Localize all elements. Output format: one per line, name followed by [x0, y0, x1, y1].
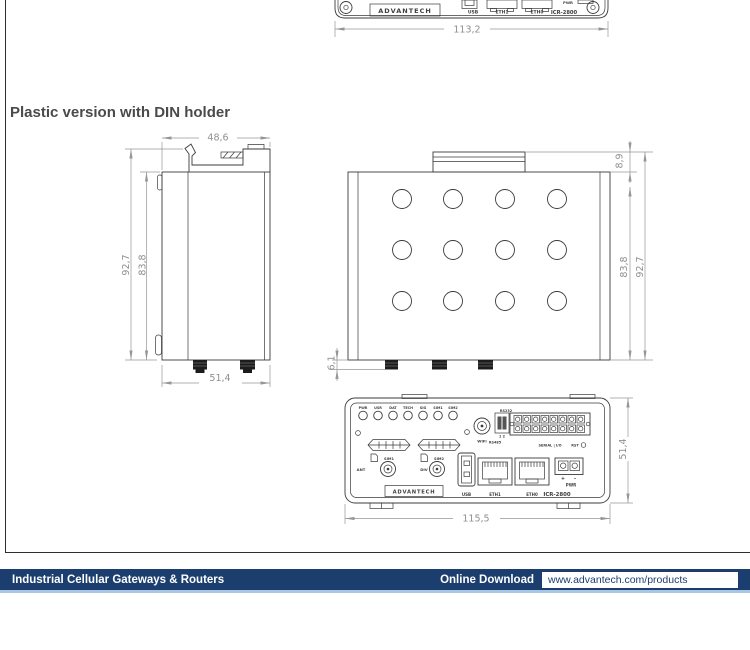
- dimension-8-9: 8,9: [525, 141, 653, 183]
- dimension-83-8: 83,8: [138, 172, 161, 360]
- section-heading: Plastic version with DIN holder: [10, 104, 230, 121]
- advantech-logo-front-text: ADVANTECH: [393, 490, 436, 496]
- usb-label: USB: [468, 10, 479, 16]
- eth0-label: ETH0: [530, 10, 543, 16]
- dim-panel-height-value: 51,4: [618, 438, 629, 459]
- bottom-feet: [370, 503, 580, 509]
- sim2-card-icon: [421, 454, 428, 462]
- device-body-top: [348, 172, 610, 360]
- datasheet-page: ADVANTECH USB ETH1 ETH0 ICR-2800 PWR 113…: [0, 0, 750, 650]
- led-label-sig: SIG: [420, 406, 427, 410]
- plus-mark: +: [561, 476, 565, 482]
- antenna-connectors-side: [193, 360, 255, 373]
- serial-mode-switch[interactable]: RS232 1 2 RS485: [489, 409, 513, 445]
- rst-label: RST: [571, 444, 579, 448]
- clip-tab-upper: [158, 175, 163, 190]
- top-view-drawing: 8,9 83,8 92,7 6,1: [325, 135, 660, 405]
- wifi-label: WiFi: [477, 439, 486, 444]
- front-panel-top-partial-drawing: ADVANTECH USB ETH1 ETH0 ICR-2800 PWR 113…: [330, 0, 620, 45]
- led-label-pwr: PWR: [359, 406, 368, 410]
- dimension-83-8-top: 83,8: [619, 187, 630, 360]
- dimension-51-4-front: 51,4: [610, 398, 633, 503]
- led-label-sim2: SIM2: [448, 406, 458, 410]
- serial-io-label: SERIAL | I/O: [538, 444, 561, 448]
- led-label-sim1: SIM1: [433, 406, 443, 410]
- power-connector[interactable]: + - PWR: [555, 458, 583, 488]
- footer-bar: Industrial Cellular Gateways & Routers O…: [0, 569, 750, 590]
- led-label-dat: DAT: [389, 406, 397, 410]
- dim-clip-height-value: 8,9: [615, 153, 626, 168]
- dim-outer-depth-value: 92,7: [635, 256, 646, 277]
- usb-port[interactable]: USB: [458, 453, 475, 497]
- switch-positions-label: 1 2: [499, 435, 506, 439]
- dim-top-width-value: 113,2: [453, 25, 480, 36]
- dimension-6-1: 6,1: [327, 348, 386, 381]
- sim2-label: SIM2: [434, 457, 445, 461]
- led-label-tech: TECH: [403, 406, 413, 410]
- advantech-logo-text: ADVANTECH: [378, 7, 432, 15]
- div-label: DIV: [420, 467, 428, 472]
- din-clip-profile: [185, 144, 270, 172]
- eth1-port[interactable]: ETH1: [478, 458, 512, 497]
- dim-connector-value: 6,1: [327, 355, 338, 370]
- reset-button[interactable]: RST: [571, 443, 586, 448]
- footer-download-label: Online Download: [440, 574, 534, 586]
- sim1-label: SIM1: [384, 457, 395, 461]
- ant-connector[interactable]: ANT: [357, 462, 396, 477]
- device-body-side: [156, 172, 271, 360]
- advantech-logo: ADVANTECH: [370, 4, 440, 16]
- sim2-slot[interactable]: SIM2: [418, 440, 460, 462]
- dimension-92-7-top: 92,7: [610, 152, 653, 360]
- screw-hole-mid: [465, 430, 470, 435]
- led-label-usr: USR: [374, 406, 382, 410]
- clip-release-tab: [156, 335, 162, 355]
- sim1-slot[interactable]: SIM1: [368, 440, 410, 462]
- footer-accent-line: [0, 590, 750, 593]
- screw-left: [340, 2, 352, 14]
- eth0-port-label: ETH0: [526, 492, 538, 497]
- pwr-connector-label: PWR: [566, 483, 576, 488]
- dimension-115-5: 115,5: [345, 504, 610, 525]
- advantech-logo-front: ADVANTECH: [385, 486, 443, 497]
- wifi-connector[interactable]: WiFi: [474, 418, 490, 444]
- screw-hole-left: [356, 431, 361, 436]
- front-panel-drawing: PWR USR DAT TECH SIG SIM1 SIM2 SIM1 SIM2: [335, 385, 665, 540]
- pwr-label: PWR: [563, 0, 573, 5]
- footer-download-area: Online Download www.advantech.com/produc…: [440, 572, 738, 588]
- side-view-drawing: 48,6 92,7 83: [95, 120, 300, 400]
- model-label-front: ICR-2800: [543, 492, 571, 498]
- usb-connector: [462, 0, 477, 9]
- vent-holes: [393, 190, 567, 311]
- dimension-113-2: 113,2: [335, 21, 608, 37]
- minus-mark: -: [574, 476, 576, 482]
- serial-io-terminal-block[interactable]: SERIAL | I/O: [510, 413, 590, 448]
- model-label: ICR-2800: [551, 10, 578, 16]
- dim-height-outer-value: 92,7: [121, 254, 132, 275]
- footer-url-link[interactable]: www.advantech.com/products: [542, 572, 738, 588]
- div-connector[interactable]: DIV: [420, 462, 444, 477]
- rs232-label: RS232: [500, 409, 513, 413]
- dim-body-depth-value: 83,8: [619, 256, 630, 277]
- dim-clip-width-value: 48,6: [207, 133, 228, 144]
- antenna-connectors-top: [385, 360, 493, 370]
- led-row: PWR USR DAT TECH SIG SIM1 SIM2: [359, 406, 459, 420]
- eth1-label: ETH1: [495, 10, 508, 16]
- content-box-left-border: [5, 0, 6, 552]
- dimension-48-6: 48,6: [162, 133, 270, 171]
- sim1-card-icon: [371, 454, 378, 462]
- usb-port-label: USB: [462, 492, 471, 497]
- eth1-port-label: ETH1: [489, 492, 501, 497]
- footer-category-title: Industrial Cellular Gateways & Routers: [12, 574, 224, 586]
- dim-bottom-width-value: 51,4: [209, 373, 230, 384]
- din-clip-top: [433, 152, 525, 172]
- content-box-bottom-border: [5, 552, 750, 553]
- dim-panel-width-value: 115,5: [462, 514, 489, 525]
- ant-label: ANT: [357, 467, 366, 472]
- dimension-92-7: 92,7: [121, 149, 183, 360]
- rs485-label: RS485: [489, 441, 502, 445]
- dim-height-body-value: 83,8: [138, 254, 149, 275]
